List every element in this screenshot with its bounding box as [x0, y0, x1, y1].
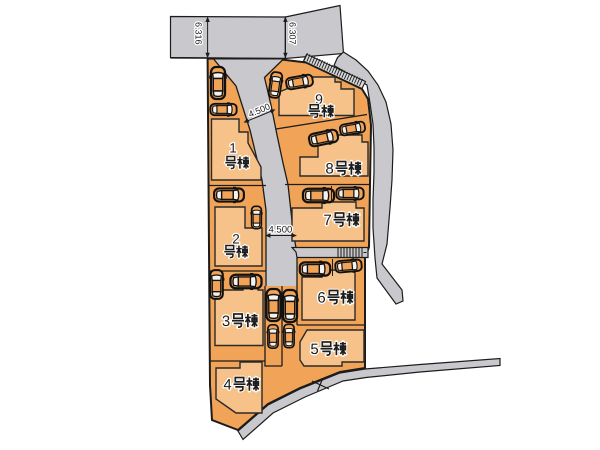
svg-text:3: 3 — [222, 313, 230, 330]
svg-text:5: 5 — [310, 341, 318, 358]
svg-text:6.307: 6.307 — [288, 22, 298, 45]
svg-text:1: 1 — [229, 141, 237, 156]
svg-text:6.316: 6.316 — [194, 22, 204, 45]
svg-text:7: 7 — [323, 212, 331, 229]
svg-text:4: 4 — [223, 377, 231, 394]
svg-text:8: 8 — [325, 161, 333, 178]
svg-text:6: 6 — [317, 290, 325, 307]
svg-text:4.500: 4.500 — [269, 225, 293, 236]
